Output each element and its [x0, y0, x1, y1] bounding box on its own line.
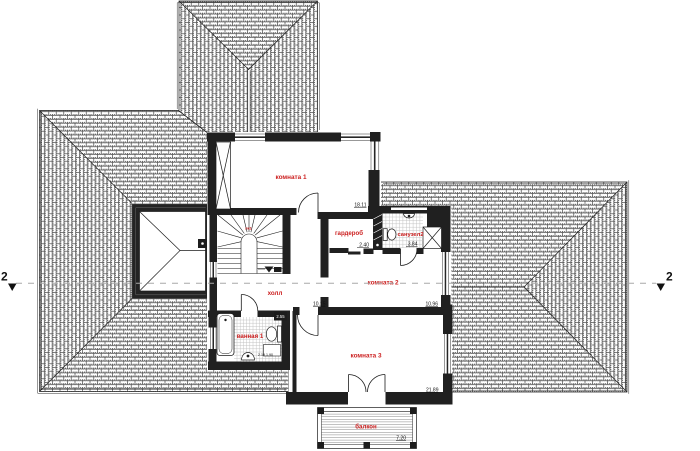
svg-text:ванная 1: ванная 1 [237, 333, 264, 340]
svg-text:2: 2 [666, 270, 673, 284]
svg-text:2: 2 [1, 270, 8, 284]
svg-text:лк1: лк1 [245, 226, 253, 231]
svg-text:комната 2: комната 2 [367, 279, 399, 286]
svg-text:гардероб: гардероб [335, 230, 363, 237]
svg-text:комната 1: комната 1 [275, 174, 307, 181]
svg-text:балкон: балкон [355, 423, 377, 430]
svg-text:комната 3: комната 3 [350, 352, 382, 359]
svg-text:холл: холл [268, 290, 283, 297]
svg-text:2.19 1.90: 2.19 1.90 [258, 353, 273, 357]
svg-text:2.55: 2.55 [276, 314, 285, 319]
svg-text:санузел2: санузел2 [397, 232, 423, 238]
